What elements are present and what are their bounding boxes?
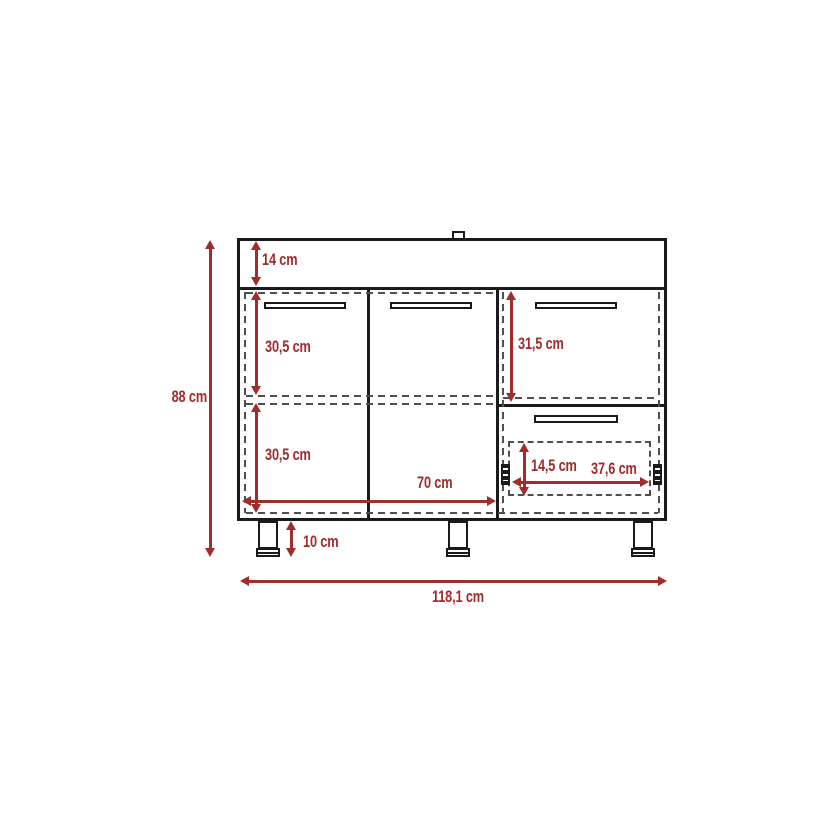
- dim-arrow-total-width: [240, 576, 667, 586]
- arrowhead-down-icon: [286, 548, 296, 557]
- leg-foot-line: [633, 552, 653, 554]
- leg-foot-line: [448, 552, 468, 554]
- dim-line: [255, 248, 258, 279]
- lower-drawer-handle: [534, 415, 618, 423]
- dim-label-inner-drawer-height: 14,5 cm: [531, 457, 577, 474]
- right-section-divider: [499, 404, 667, 407]
- dim-label-total-height: 88 cm: [162, 388, 207, 405]
- dim-label-inner-drawer-width: 37,6 cm: [591, 460, 637, 477]
- leg-foot-line: [258, 552, 278, 554]
- arrowhead-down-icon: [251, 277, 261, 286]
- dim-label-right-drawer-height: 31,5 cm: [518, 335, 564, 352]
- dim-label-doors-width: 70 cm: [417, 474, 452, 491]
- arrowhead-down-icon: [205, 548, 215, 557]
- dim-line: [255, 410, 258, 506]
- dim-arrow-upper-section-height: [251, 291, 261, 395]
- arrowhead-right-icon: [640, 477, 649, 487]
- arrowhead-down-icon: [519, 487, 529, 496]
- dim-arrow-right-drawer-height: [506, 291, 516, 402]
- dim-line: [249, 500, 489, 503]
- dim-arrow-doors-width: [242, 496, 496, 506]
- leg-foot: [446, 548, 470, 557]
- arrowhead-down-icon: [251, 386, 261, 395]
- upper-drawer-handle: [535, 302, 617, 309]
- dim-line: [290, 528, 293, 550]
- drawer-slide-left-icon: [501, 464, 510, 485]
- middle-door-handle: [390, 302, 472, 309]
- dim-arrow-countertop-height: [251, 241, 261, 286]
- leg-body: [448, 521, 468, 549]
- drawer-slide-right-icon: [653, 464, 662, 485]
- dim-label-lower-section-height: 30,5 cm: [265, 446, 311, 463]
- dim-arrow-inner-drawer-width: [512, 477, 649, 487]
- leg-body: [258, 521, 278, 549]
- dim-line: [209, 247, 212, 550]
- dim-arrow-inner-drawer-height: [519, 443, 529, 496]
- dim-line: [247, 580, 660, 583]
- dim-arrow-leg-height: [286, 521, 296, 557]
- furniture-dimension-diagram: 88 cm 14 cm 30,5 cm 30,5 cm 31,5 cm 70 c…: [0, 0, 840, 840]
- leg-body: [633, 521, 653, 549]
- left-door-handle: [264, 302, 346, 309]
- dim-line: [255, 298, 258, 388]
- arrowhead-down-icon: [506, 393, 516, 402]
- arrowhead-right-icon: [658, 576, 667, 586]
- dim-label-leg-height: 10 cm: [303, 533, 338, 550]
- dashed-line-above-right-divider: [503, 397, 658, 399]
- dim-label-total-width: 118,1 cm: [413, 588, 503, 605]
- dim-line: [510, 298, 513, 395]
- arrowhead-right-icon: [487, 496, 496, 506]
- dim-line: [519, 481, 642, 484]
- dashed-line-bottom-edge: [246, 512, 658, 514]
- dashed-shelf-line-upper: [246, 395, 496, 397]
- dim-label-upper-section-height: 30,5 cm: [265, 338, 311, 355]
- dashed-shelf-line-lower: [246, 403, 496, 405]
- countertop-divider-line: [237, 287, 667, 290]
- leg-foot: [256, 548, 280, 557]
- dim-label-countertop-height: 14 cm: [262, 251, 297, 268]
- dashed-line-under-counter: [246, 292, 496, 294]
- leg-foot: [631, 548, 655, 557]
